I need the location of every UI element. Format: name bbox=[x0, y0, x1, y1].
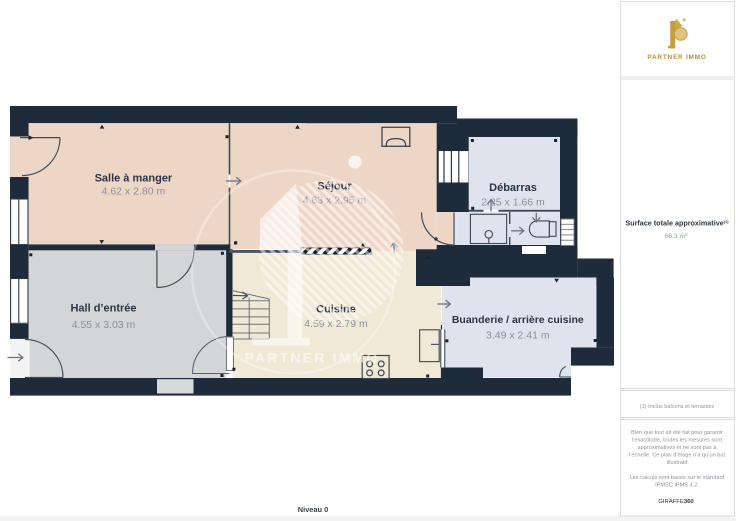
svg-text:approximatives et ne sont pas: approximatives et ne sont pas à bbox=[638, 445, 718, 451]
svg-text:Débarras: Débarras bbox=[489, 182, 537, 194]
svg-text:Bien que tout ait été fait pou: Bien que tout ait été fait pour garantir bbox=[631, 430, 723, 436]
svg-text:4.62 x 2.80 m: 4.62 x 2.80 m bbox=[102, 185, 166, 197]
svg-text:Salle à manger: Salle à manger bbox=[95, 172, 173, 184]
svg-text:PARTNER IMMO: PARTNER IMMO bbox=[647, 54, 706, 61]
svg-text:Buanderie / arrière cuisine: Buanderie / arrière cuisine bbox=[452, 314, 584, 326]
svg-text:Hall d’entrée: Hall d’entrée bbox=[70, 303, 136, 315]
svg-text:66.3 m²: 66.3 m² bbox=[664, 233, 688, 240]
svg-text:Surface totale approximative(1: Surface totale approximative(1) bbox=[625, 219, 729, 228]
svg-text:IPMSC IPMS 4.2.: IPMSC IPMS 4.2. bbox=[655, 483, 699, 489]
svg-text:2.25 x 1.66 m: 2.25 x 1.66 m bbox=[481, 197, 545, 209]
svg-text:l’échelle. Ce plan d’étage n’a: l’échelle. Ce plan d’étage n’a qu’un but bbox=[629, 453, 726, 459]
svg-text:illustratif: illustratif bbox=[667, 460, 688, 466]
svg-text:PARTNER IMMO: PARTNER IMMO bbox=[244, 350, 379, 366]
svg-text:3.49 x 2.41 m: 3.49 x 2.41 m bbox=[486, 329, 550, 341]
svg-text:Niveau 0: Niveau 0 bbox=[298, 505, 328, 514]
svg-text:Les calculs sont basés sur le: Les calculs sont basés sur le standard bbox=[630, 475, 725, 481]
svg-text:(1) Inclus balcons et terrasse: (1) Inclus balcons et terrasses bbox=[640, 404, 715, 410]
svg-text:l’exactitude, toutes les mesur: l’exactitude, toutes les mesures sont bbox=[632, 438, 723, 444]
svg-text:GIRAFFE360: GIRAFFE360 bbox=[658, 499, 694, 505]
svg-text:4.55 x 3.03 m: 4.55 x 3.03 m bbox=[72, 319, 136, 331]
